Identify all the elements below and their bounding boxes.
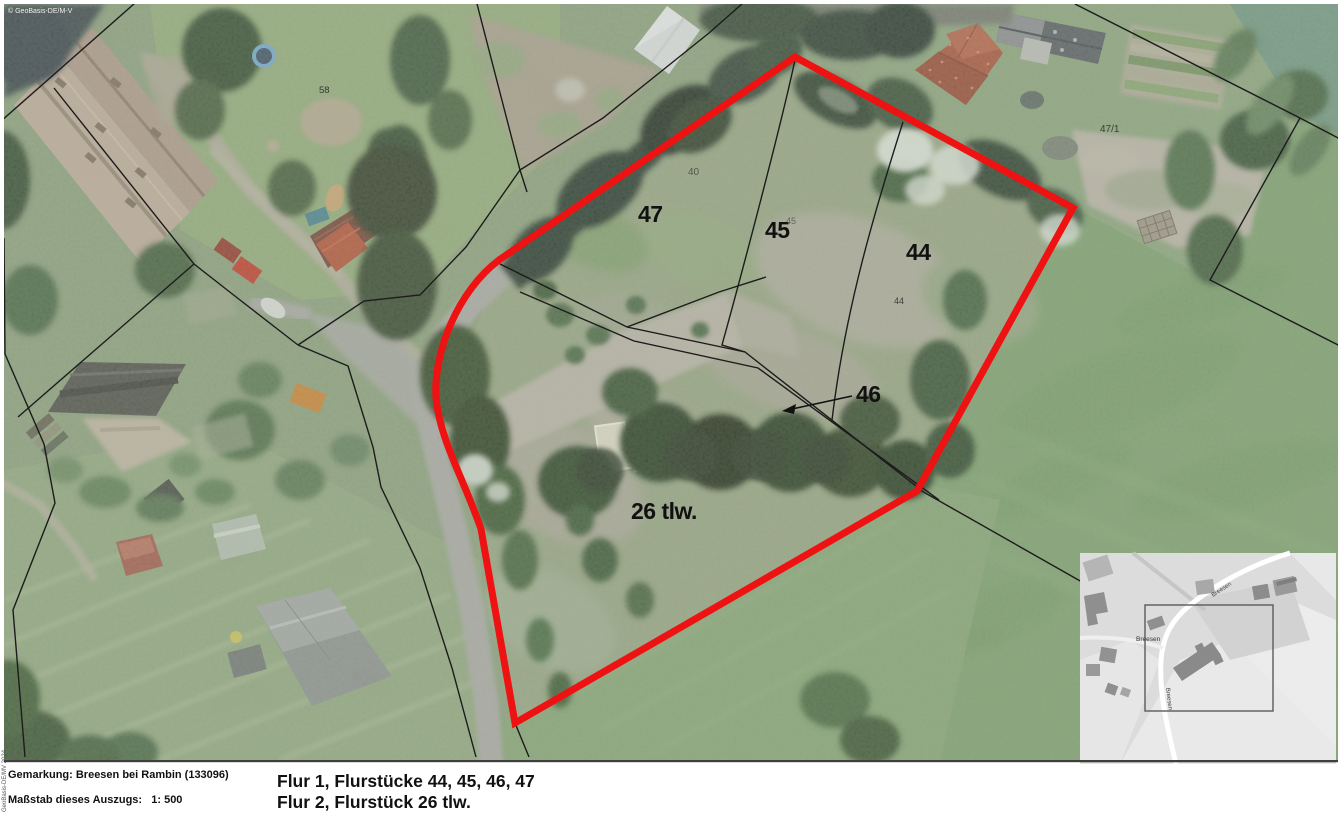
svg-text:58: 58 — [319, 85, 330, 96]
svg-text:Gemarkung: Breesen bei Rambin: Gemarkung: Breesen bei Rambin (133096) — [8, 769, 229, 781]
svg-text:Breesen: Breesen — [1136, 636, 1161, 643]
svg-text:Maßstab dieses Auszugs: 1: 5: Maßstab dieses Auszugs: 1: 500 — [8, 794, 182, 806]
svg-text:© GeoBasis-DE/M-V: © GeoBasis-DE/M-V — [8, 7, 73, 15]
svg-text:44: 44 — [894, 296, 904, 306]
svg-text:Flur 2, Flurstück 26 tlw.: Flur 2, Flurstück 26 tlw. — [277, 792, 471, 812]
svg-text:40: 40 — [688, 167, 700, 178]
svg-text:47/1: 47/1 — [1100, 124, 1120, 135]
svg-text:47: 47 — [638, 201, 663, 227]
svg-text:26 tlw.: 26 tlw. — [631, 498, 697, 524]
svg-text:44: 44 — [906, 239, 931, 265]
svg-text:45: 45 — [786, 216, 796, 226]
svg-text:46: 46 — [856, 381, 881, 407]
svg-text:Flur 1, Flurstücke 44, 45, 46,: Flur 1, Flurstücke 44, 45, 46, 47 — [277, 771, 535, 791]
